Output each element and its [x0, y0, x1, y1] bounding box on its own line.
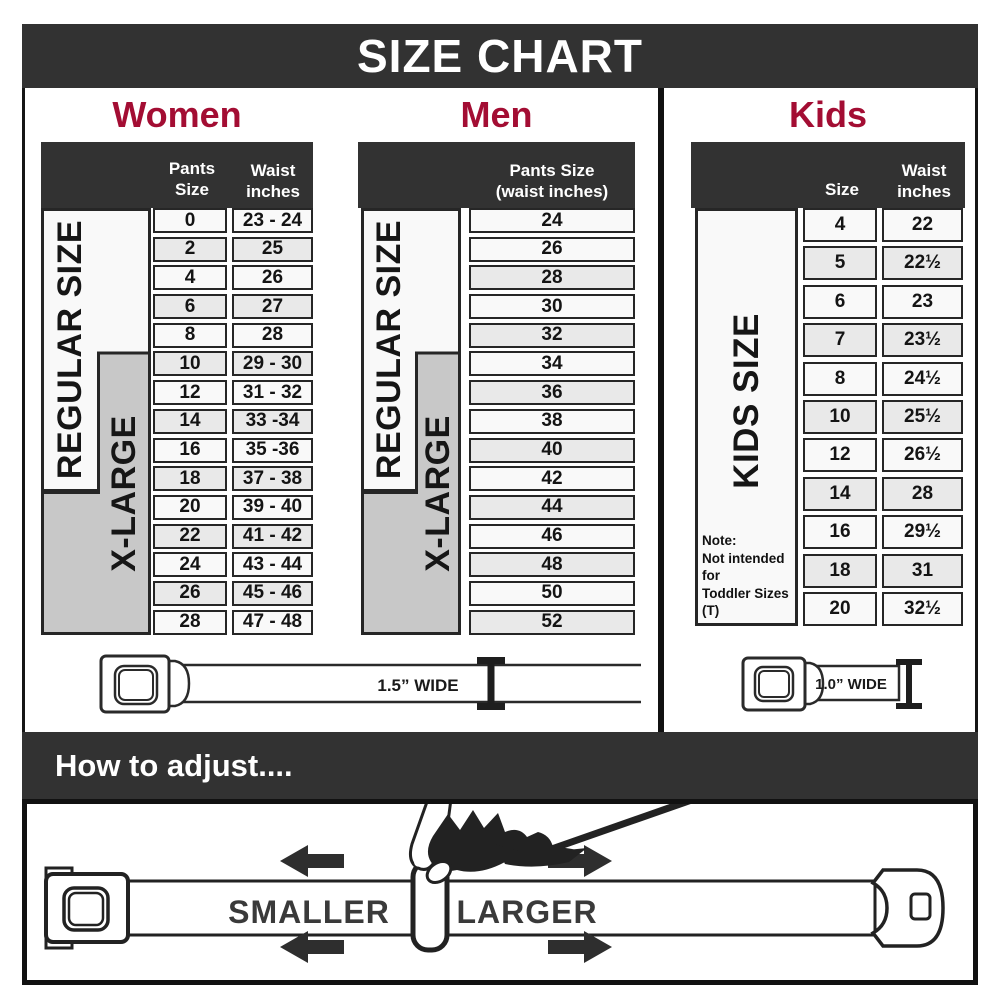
table-row: 824½ [803, 362, 963, 396]
table-cell: 26 [153, 581, 227, 606]
table-row: 1029 - 30 [153, 351, 313, 376]
table-cell: 28 [153, 610, 227, 635]
table-cell: 30 [469, 294, 635, 319]
table-cell: 50 [469, 581, 635, 606]
men-size-category-zone: REGULAR SIZE X-LARGE [361, 208, 461, 635]
men-table-header: Pants Size (waist inches) [358, 142, 635, 208]
table-cell: 44 [469, 495, 635, 520]
men-col-line1: Pants Size [469, 161, 635, 181]
note-line1: Note: [702, 532, 795, 550]
table-row: 2645 - 46 [153, 581, 313, 606]
women-heading: Women [41, 94, 313, 136]
men-heading: Men [358, 94, 635, 136]
table-row: 1433 -34 [153, 409, 313, 434]
table-cell: 36 [469, 380, 635, 405]
table-cell: 28 [882, 477, 963, 511]
table-row: 30 [469, 294, 635, 319]
table-cell: 26 [232, 265, 313, 290]
table-row: 2032½ [803, 592, 963, 626]
table-cell: 14 [153, 409, 227, 434]
buckle-hole-inner [119, 670, 153, 700]
table-cell: 28 [232, 323, 313, 348]
table-cell: 27 [232, 294, 313, 319]
kids-heading: Kids [691, 94, 965, 136]
table-row: 2241 - 42 [153, 524, 313, 549]
table-cell: 52 [469, 610, 635, 635]
table-row: 1629½ [803, 515, 963, 549]
table-cell: 26½ [882, 438, 963, 472]
table-cell: 24 [469, 208, 635, 233]
table-cell: 18 [803, 554, 877, 588]
women-col-waist-line1: Waist [233, 161, 313, 181]
table-row: 1837 - 38 [153, 466, 313, 491]
table-cell: 8 [803, 362, 877, 396]
table-row: 44 [469, 495, 635, 520]
table-cell: 25 [232, 237, 313, 262]
table-cell: 24 [153, 552, 227, 577]
table-cell: 40 [469, 438, 635, 463]
xlarge-text: X-LARGE [419, 415, 458, 572]
men-col-line2: (waist inches) [469, 182, 635, 202]
table-row: 36 [469, 380, 635, 405]
table-cell: 4 [803, 208, 877, 242]
table-cell: 34 [469, 351, 635, 376]
table-row: 2443 - 44 [153, 552, 313, 577]
table-row: 32 [469, 323, 635, 348]
women-size-category-zone: REGULAR SIZE X-LARGE [41, 208, 151, 635]
table-cell: 23½ [882, 323, 963, 357]
table-cell: 7 [803, 323, 877, 357]
note-line2: Not intended for [702, 550, 795, 585]
women-col-pants-size: Pants Size [153, 159, 231, 200]
table-cell: 0 [153, 208, 227, 233]
women-regular-size-label: REGULAR SIZE [41, 208, 100, 491]
table-cell: 16 [803, 515, 877, 549]
table-cell: 26 [469, 237, 635, 262]
table-cell: 4 [153, 265, 227, 290]
table-row: 522½ [803, 246, 963, 280]
table-row: 1025½ [803, 400, 963, 434]
table-row: 1231 - 32 [153, 380, 313, 405]
table-cell: 45 - 46 [232, 581, 313, 606]
table-cell: 29½ [882, 515, 963, 549]
table-row: 26 [469, 237, 635, 262]
table-row: 023 - 24 [153, 208, 313, 233]
table-row: 40 [469, 438, 635, 463]
table-cell: 31 [882, 554, 963, 588]
table-row: 42 [469, 466, 635, 491]
table-cell: 6 [803, 285, 877, 319]
table-cell: 18 [153, 466, 227, 491]
table-row: 623 [803, 285, 963, 319]
note-line3: Toddler Sizes (T) [702, 585, 795, 620]
table-row: 24 [469, 208, 635, 233]
table-cell: 8 [153, 323, 227, 348]
kids-col-waist-line2: inches [885, 182, 963, 202]
regular-size-text: REGULAR SIZE [370, 220, 409, 479]
kids-size-text: KIDS SIZE [727, 313, 767, 489]
regular-size-text: REGULAR SIZE [51, 220, 90, 479]
table-cell: 2 [153, 237, 227, 262]
table-row: 38 [469, 409, 635, 434]
table-row: 1635 -36 [153, 438, 313, 463]
kids-note: Note: Not intended for Toddler Sizes (T) [702, 532, 795, 620]
table-cell: 46 [469, 524, 635, 549]
kids-col-size: Size [803, 180, 881, 200]
table-cell: 20 [803, 592, 877, 626]
table-cell: 22½ [882, 246, 963, 280]
table-row: 422 [803, 208, 963, 242]
table-cell: 10 [803, 400, 877, 434]
table-row: 28 [469, 265, 635, 290]
table-cell: 48 [469, 552, 635, 577]
table-cell: 29 - 30 [232, 351, 313, 376]
men-xlarge-label: X-LARGE [416, 353, 461, 633]
women-rows: 023 - 242254266278281029 - 301231 - 3214… [153, 208, 313, 638]
larger-label: LARGER [456, 894, 597, 930]
title-band: SIZE CHART [22, 24, 978, 88]
panel-divider [658, 88, 664, 732]
how-to-adjust-band: How to adjust.... [22, 732, 978, 799]
kids-belt-illustration: 1.0” WIDE [691, 648, 965, 728]
table-cell: 39 - 40 [232, 495, 313, 520]
table-row: 723½ [803, 323, 963, 357]
adjust-illustration: SMALLER LARGER [27, 804, 973, 980]
pull-strap-line [543, 804, 703, 852]
table-row: 426 [153, 265, 313, 290]
adult-belt-width-label: 1.5” WIDE [377, 676, 458, 695]
belt-tongue-icon [873, 870, 943, 946]
table-cell: 23 [882, 285, 963, 319]
table-cell: 38 [469, 409, 635, 434]
men-col-pants-size: Pants Size (waist inches) [469, 161, 635, 202]
table-row: 828 [153, 323, 313, 348]
table-cell: 32 [469, 323, 635, 348]
table-cell: 23 - 24 [232, 208, 313, 233]
table-cell: 10 [153, 351, 227, 376]
table-cell: 22 [153, 524, 227, 549]
table-cell: 37 - 38 [232, 466, 313, 491]
table-cell: 43 - 44 [232, 552, 313, 577]
table-row: 46 [469, 524, 635, 549]
table-cell: 6 [153, 294, 227, 319]
kids-table-header: Size Waist inches [691, 142, 965, 208]
table-row: 48 [469, 552, 635, 577]
table-cell: 42 [469, 466, 635, 491]
table-row: 50 [469, 581, 635, 606]
table-row: 627 [153, 294, 313, 319]
table-row: 1428 [803, 477, 963, 511]
table-cell: 33 -34 [232, 409, 313, 434]
table-cell: 12 [803, 438, 877, 472]
table-row: 2847 - 48 [153, 610, 313, 635]
table-row: 2039 - 40 [153, 495, 313, 520]
table-cell: 31 - 32 [232, 380, 313, 405]
xlarge-text: X-LARGE [105, 415, 144, 572]
table-cell: 22 [882, 208, 963, 242]
buckle-hole-inner [759, 671, 789, 697]
size-chart-page: SIZE CHART Women Men Kids Pants Size Wai… [0, 0, 1000, 1000]
women-table-header: Pants Size Waist inches [41, 142, 313, 208]
size-tables-area: Women Men Kids Pants Size Waist inches P… [22, 88, 978, 732]
kids-belt-width-label: 1.0” WIDE [815, 676, 887, 693]
table-cell: 28 [469, 265, 635, 290]
women-col-waist: Waist inches [233, 161, 313, 202]
table-cell: 20 [153, 495, 227, 520]
table-cell: 47 - 48 [232, 610, 313, 635]
table-row: 1226½ [803, 438, 963, 472]
table-cell: 35 -36 [232, 438, 313, 463]
kids-rows: 422522½623723½824½1025½1226½14281629½183… [803, 208, 963, 630]
table-cell: 24½ [882, 362, 963, 396]
kids-size-category-box: KIDS SIZE Note: Not intended for Toddler… [695, 208, 798, 626]
table-cell: 32½ [882, 592, 963, 626]
table-cell: 12 [153, 380, 227, 405]
table-cell: 25½ [882, 400, 963, 434]
kids-col-waist: Waist inches [885, 161, 963, 202]
table-row: 225 [153, 237, 313, 262]
belt-buckle-icon [46, 868, 128, 948]
table-cell: 41 - 42 [232, 524, 313, 549]
table-cell: 16 [153, 438, 227, 463]
men-regular-size-label: REGULAR SIZE [361, 208, 418, 491]
smaller-label: SMALLER [228, 894, 390, 930]
kids-col-waist-line1: Waist [885, 161, 963, 181]
table-cell: 14 [803, 477, 877, 511]
how-to-adjust-title: How to adjust.... [22, 748, 293, 784]
adjust-illustration-panel: SMALLER LARGER [22, 799, 978, 985]
men-rows: 242628303234363840424446485052 [469, 208, 635, 638]
table-cell: 5 [803, 246, 877, 280]
adult-belt-illustration: 1.5” WIDE [41, 648, 641, 728]
table-row: 34 [469, 351, 635, 376]
women-col-waist-line2: inches [233, 182, 313, 202]
table-row: 52 [469, 610, 635, 635]
table-row: 1831 [803, 554, 963, 588]
page-title: SIZE CHART [357, 29, 643, 83]
women-xlarge-label: X-LARGE [98, 353, 151, 633]
